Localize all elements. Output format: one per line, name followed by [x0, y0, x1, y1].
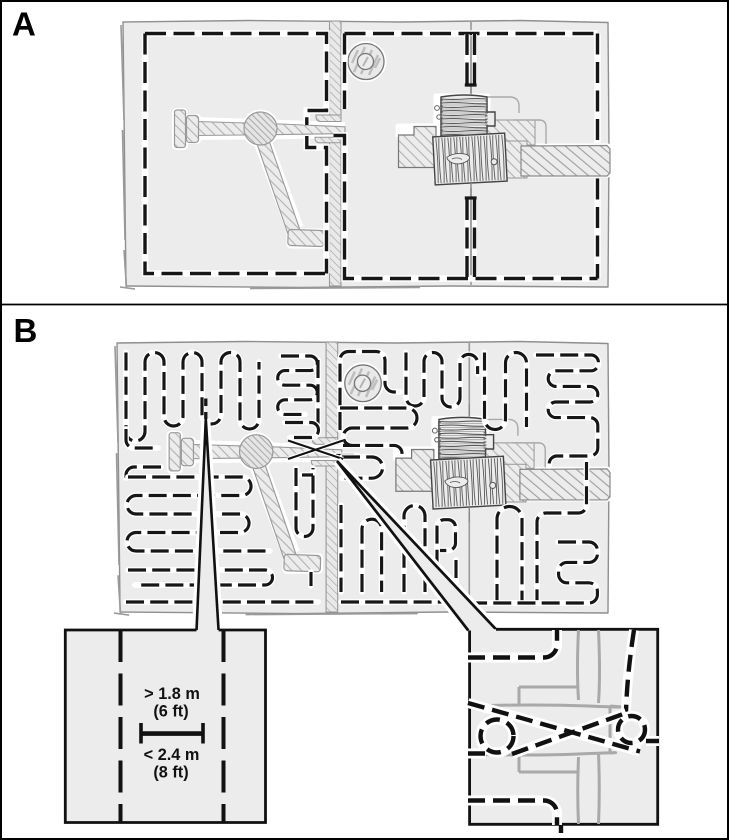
- svg-text:(6 ft): (6 ft): [153, 703, 188, 721]
- svg-text:< 2.4 m: < 2.4 m: [144, 746, 200, 764]
- svg-text:(8 ft): (8 ft): [153, 764, 188, 782]
- svg-text:A: A: [12, 6, 36, 43]
- svg-text:B: B: [14, 312, 38, 349]
- svg-text:> 1.8 m: > 1.8 m: [144, 685, 200, 703]
